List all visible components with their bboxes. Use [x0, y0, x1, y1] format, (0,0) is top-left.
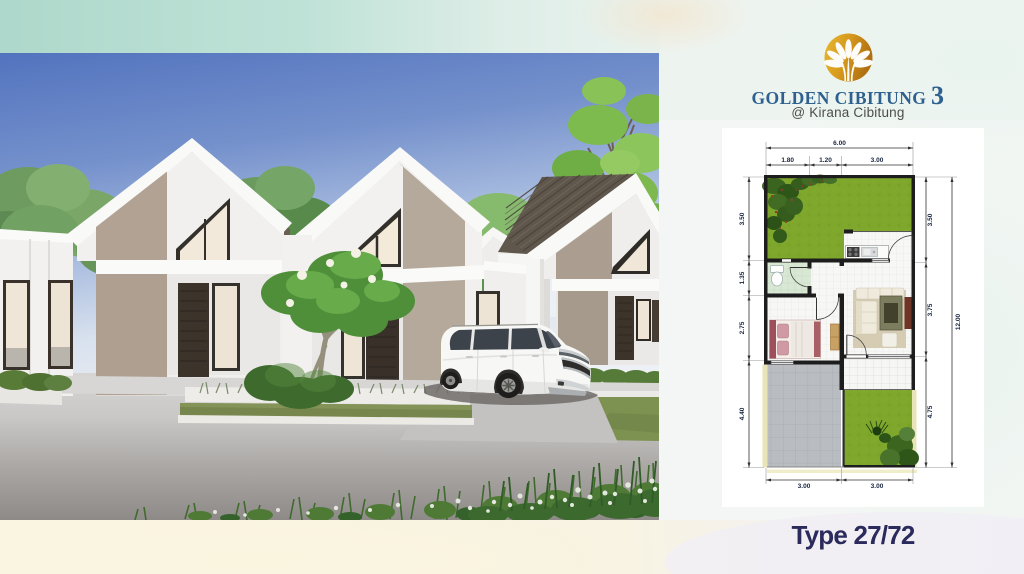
svg-text:1.35: 1.35: [739, 271, 746, 284]
svg-text:2.75: 2.75: [739, 321, 746, 334]
svg-text:3.75: 3.75: [927, 303, 934, 316]
svg-text:6.00: 6.00: [833, 140, 846, 147]
svg-text:3.50: 3.50: [739, 212, 746, 225]
svg-text:3.50: 3.50: [927, 213, 934, 226]
svg-text:12.00: 12.00: [955, 313, 962, 330]
svg-text:1.20: 1.20: [819, 157, 832, 164]
svg-text:3.00: 3.00: [871, 483, 884, 490]
svg-text:4.75: 4.75: [927, 405, 934, 418]
svg-text:4.40: 4.40: [739, 407, 746, 420]
svg-text:3.00: 3.00: [798, 483, 811, 490]
svg-text:1.80: 1.80: [781, 157, 794, 164]
svg-text:3.00: 3.00: [871, 157, 884, 164]
